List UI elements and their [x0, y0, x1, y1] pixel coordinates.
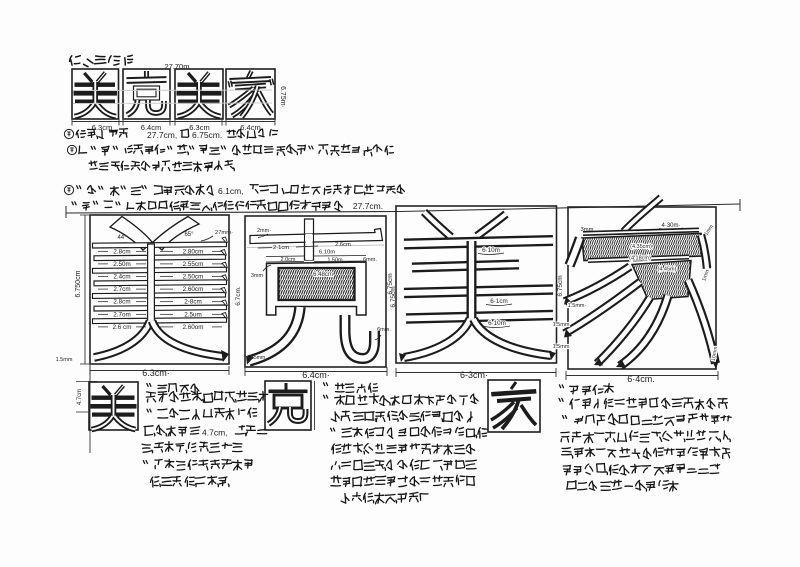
- svg-text:6.75cm: 6.75cm: [387, 273, 394, 294]
- svg-text:65°: 65°: [184, 232, 194, 238]
- svg-text:6·1cm: 6·1cm: [490, 298, 508, 305]
- svg-text:2.55cm: 2.55cm: [183, 261, 204, 268]
- svg-text:2.7om: 2.7om: [113, 311, 131, 318]
- svg-text:1.5mm: 1.5mm: [553, 344, 570, 350]
- svg-text:6mm.: 6mm.: [377, 327, 391, 333]
- svg-text:6·10m: 6·10m: [482, 247, 500, 254]
- svg-text:6.750cm: 6.750cm: [75, 270, 82, 297]
- svg-text:6.10m: 6.10m: [319, 250, 335, 256]
- svg-text:3mm: 3mm: [251, 273, 264, 279]
- svg-text:6-3cm·: 6-3cm·: [460, 370, 488, 380]
- svg-text:6.75cm.: 6.75cm.: [192, 130, 222, 140]
- svg-text:2.80cm: 2.80cm: [183, 248, 204, 255]
- svg-text:2.0cm: 2.0cm: [281, 257, 296, 263]
- svg-text:6.4cm·: 6.4cm·: [302, 370, 330, 380]
- svg-text:1.5mm: 1.5mm: [56, 357, 73, 363]
- svg-text:2.60cm: 2.60cm: [183, 286, 204, 293]
- svg-text:6·4cm.: 6·4cm.: [627, 374, 655, 384]
- svg-text:6.48cm: 6.48cm: [313, 272, 333, 278]
- svg-text:(4.35cm): (4.35cm): [630, 244, 652, 250]
- svg-text:6·10m: 6·10m: [488, 320, 506, 327]
- svg-text:4.7cm,: 4.7cm,: [202, 427, 228, 437]
- svg-text:27.7cm,: 27.7cm,: [147, 130, 177, 140]
- svg-text:44°: 44°: [117, 235, 127, 241]
- svg-text:1.5mm: 1.5mm: [553, 322, 570, 328]
- svg-text:6.7cm.: 6.7cm.: [235, 286, 242, 306]
- svg-text:2-8cm: 2-8cm: [184, 299, 202, 306]
- svg-text:2.8cm: 2.8cm: [113, 299, 130, 306]
- svg-text:2.5υm: 2.5υm: [184, 311, 201, 318]
- svg-text:2.6 cm: 2.6 cm: [113, 324, 132, 331]
- svg-text:3mm: 3mm: [581, 227, 594, 233]
- svg-text:4·30m·: 4·30m·: [661, 223, 680, 229]
- svg-text:4.7cm: 4.7cm: [77, 389, 83, 405]
- svg-text:6.4cm: 6.4cm: [240, 123, 260, 132]
- svg-text:2.50m: 2.50m: [113, 261, 131, 268]
- svg-text:6.75m·: 6.75m·: [279, 86, 286, 108]
- svg-text:2.7cm: 2.7cm: [113, 286, 130, 293]
- svg-text:1.50m: 1.50m: [327, 258, 343, 264]
- svg-text:2.60om: 2.60om: [182, 324, 203, 331]
- svg-text:2·1cm: 2·1cm: [273, 245, 289, 251]
- svg-text:6.75cm: 6.75cm: [557, 275, 564, 296]
- svg-text:27mm·: 27mm·: [215, 230, 233, 236]
- svg-text:1.35mm: 1.35mm: [247, 355, 265, 361]
- svg-text:27.7cm.: 27.7cm.: [353, 201, 383, 211]
- svg-text:6.3cm·: 6.3cm·: [142, 368, 170, 378]
- svg-text:2.4cm: 2.4cm: [113, 274, 130, 281]
- svg-text:6.1cm,: 6.1cm,: [218, 186, 244, 196]
- svg-text:(4.18cm): (4.18cm): [629, 256, 651, 262]
- svg-text:2.50cm: 2.50cm: [183, 274, 204, 281]
- svg-text:2mm·: 2mm·: [257, 228, 271, 234]
- svg-text:6mm.: 6mm.: [363, 257, 377, 263]
- svg-text:2.8cm: 2.8cm: [113, 248, 130, 255]
- svg-text:2.6cm: 2.6cm: [335, 242, 351, 248]
- svg-text:1.5mm·: 1.5mm·: [568, 303, 587, 309]
- svg-text:(4.45m): (4.45m): [658, 267, 677, 273]
